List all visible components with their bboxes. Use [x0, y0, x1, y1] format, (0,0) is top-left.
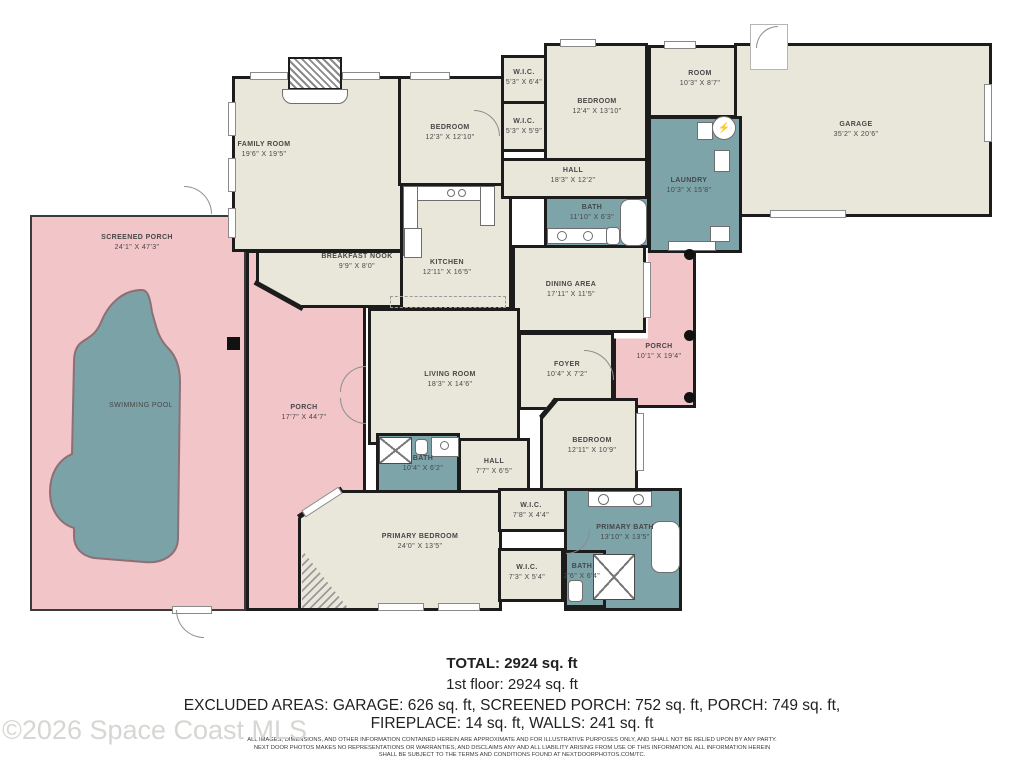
room-label-wic-3: W.I.C.7'8" X 4'4": [513, 501, 549, 521]
room-label-swimming-pool: SWIMMING POOL: [109, 401, 173, 411]
room-dims-wic-2: 5'3" X 5'9": [506, 127, 542, 137]
room-dims-breakfast-nook: 9'9" X 8'0": [321, 262, 392, 272]
room-label-bath-3: BATH2'6" X 6'4": [564, 562, 600, 582]
room-name-bedroom-3: BEDROOM: [568, 436, 617, 446]
room-dims-screened-porch: 24'1" X 47'3": [101, 243, 173, 253]
page: ⚡: [0, 0, 1024, 768]
room-label-primary-bath: PRIMARY BATH13'10" X 13'5": [596, 523, 654, 543]
room-label-bedroom-3: BEDROOM12'11" X 10'9": [568, 436, 617, 456]
room-name-screened-porch: SCREENED PORCH: [101, 233, 173, 243]
room-name-kitchen: KITCHEN: [423, 258, 472, 268]
room-name-laundry: LAUNDRY: [667, 176, 712, 186]
room-dims-porch-back: 10'1" X 19'4": [637, 352, 682, 362]
room-dims-laundry: 10'3" X 15'8": [667, 186, 712, 196]
room-name-primary-bath: PRIMARY BATH: [596, 523, 654, 533]
room-name-primary-bedroom: PRIMARY BEDROOM: [382, 532, 458, 542]
room-dims-bath-2: 10'4" X 6'2": [403, 464, 443, 474]
room-dims-bath-1: 11'10" X 6'3": [570, 213, 614, 223]
room-name-family-room: FAMILY ROOM: [237, 140, 290, 150]
room-dims-primary-bath: 13'10" X 13'5": [596, 533, 654, 543]
room-name-living-room: LIVING ROOM: [424, 370, 475, 380]
room-dims-kitchen: 12'11" X 16'5": [423, 268, 472, 278]
total-area-text: TOTAL: 2924 sq. ft: [0, 655, 1024, 672]
room-name-foyer: FOYER: [547, 360, 587, 370]
room-dims-hall-2: 7'7" X 6'5": [476, 467, 512, 477]
room-label-wic-4: W.I.C.7'3" X 5'4": [509, 563, 545, 583]
room-label-bedroom-2: BEDROOM12'4" X 13'10": [572, 97, 621, 117]
room-label-dining-area: DINING AREA17'11" X 11'5": [546, 280, 596, 300]
room-dims-living-room: 18'3" X 14'6": [424, 380, 475, 390]
room-name-hall-1: HALL: [551, 166, 596, 176]
room-label-garage: GARAGE35'2" X 20'6": [834, 120, 879, 140]
room-name-wic-1: W.I.C.: [506, 68, 542, 78]
room-label-porch-back: PORCH10'1" X 19'4": [637, 342, 682, 362]
room-dims-foyer: 10'4" X 7'2": [547, 370, 587, 380]
floorplan: ⚡: [0, 0, 1024, 768]
room-name-porch-left: PORCH: [282, 403, 327, 413]
room-dims-room: 10'3" X 8'7": [680, 79, 720, 89]
room-dims-garage: 35'2" X 20'6": [834, 130, 879, 140]
room-name-porch-back: PORCH: [637, 342, 682, 352]
room-name-wic-2: W.I.C.: [506, 117, 542, 127]
room-label-hall-2: HALL7'7" X 6'5": [476, 457, 512, 477]
room-label-laundry: LAUNDRY10'3" X 15'8": [667, 176, 712, 196]
room-name-bedroom-1: BEDROOM: [425, 123, 474, 133]
excluded-areas-text: EXCLUDED AREAS: GARAGE: 626 sq. ft, SCRE…: [0, 697, 1024, 715]
room-name-room: ROOM: [680, 69, 720, 79]
room-label-kitchen: KITCHEN12'11" X 16'5": [423, 258, 472, 278]
room-label-bath-1: BATH11'10" X 6'3": [570, 203, 614, 223]
room-name-dining-area: DINING AREA: [546, 280, 596, 290]
room-label-living-room: LIVING ROOM18'3" X 14'6": [424, 370, 475, 390]
room-name-bath-2: BATH: [403, 454, 443, 464]
room-dims-wic-3: 7'8" X 4'4": [513, 511, 549, 521]
room-dims-family-room: 19'6" X 19'5": [237, 150, 290, 160]
room-dims-bedroom-1: 12'3" X 12'10": [425, 133, 474, 143]
room-label-bath-2: BATH10'4" X 6'2": [403, 454, 443, 474]
room-name-wic-4: W.I.C.: [509, 563, 545, 573]
labels-layer: SCREENED PORCH24'1" X 47'3"PORCH17'7" X …: [0, 0, 1024, 768]
room-name-swimming-pool: SWIMMING POOL: [109, 401, 173, 411]
room-label-porch-left: PORCH17'7" X 44'7": [282, 403, 327, 423]
room-name-bath-1: BATH: [570, 203, 614, 213]
room-dims-primary-bedroom: 24'0" X 13'5": [382, 542, 458, 552]
room-dims-wic-1: 5'3" X 6'4": [506, 78, 542, 88]
room-name-breakfast-nook: BREAKFAST NOOK: [321, 252, 392, 262]
room-name-wic-3: W.I.C.: [513, 501, 549, 511]
room-label-breakfast-nook: BREAKFAST NOOK9'9" X 8'0": [321, 252, 392, 272]
room-name-garage: GARAGE: [834, 120, 879, 130]
room-dims-porch-left: 17'7" X 44'7": [282, 413, 327, 423]
room-dims-wic-4: 7'3" X 5'4": [509, 573, 545, 583]
room-dims-bedroom-2: 12'4" X 13'10": [572, 107, 621, 117]
room-label-family-room: FAMILY ROOM19'6" X 19'5": [237, 140, 290, 160]
room-label-hall-1: HALL18'3" X 12'2": [551, 166, 596, 186]
room-name-bath-3: BATH: [564, 562, 600, 572]
disclaimer-line: SHALL BE SUBJECT TO THE TERMS AND CONDIT…: [0, 752, 1024, 759]
floor-area-text: 1st floor: 2924 sq. ft: [0, 676, 1024, 693]
watermark: ©2026 Space Coast MLS: [2, 715, 307, 746]
room-dims-bath-3: 2'6" X 6'4": [564, 572, 600, 582]
room-label-wic-1: W.I.C.5'3" X 6'4": [506, 68, 542, 88]
room-label-primary-bedroom: PRIMARY BEDROOM24'0" X 13'5": [382, 532, 458, 552]
room-dims-bedroom-3: 12'11" X 10'9": [568, 446, 617, 456]
room-name-hall-2: HALL: [476, 457, 512, 467]
room-label-screened-porch: SCREENED PORCH24'1" X 47'3": [101, 233, 173, 253]
room-dims-dining-area: 17'11" X 11'5": [546, 290, 596, 300]
room-label-room: ROOM10'3" X 8'7": [680, 69, 720, 89]
room-label-foyer: FOYER10'4" X 7'2": [547, 360, 587, 380]
room-label-bedroom-1: BEDROOM12'3" X 12'10": [425, 123, 474, 143]
room-name-bedroom-2: BEDROOM: [572, 97, 621, 107]
room-dims-hall-1: 18'3" X 12'2": [551, 176, 596, 186]
room-label-wic-2: W.I.C.5'3" X 5'9": [506, 117, 542, 137]
